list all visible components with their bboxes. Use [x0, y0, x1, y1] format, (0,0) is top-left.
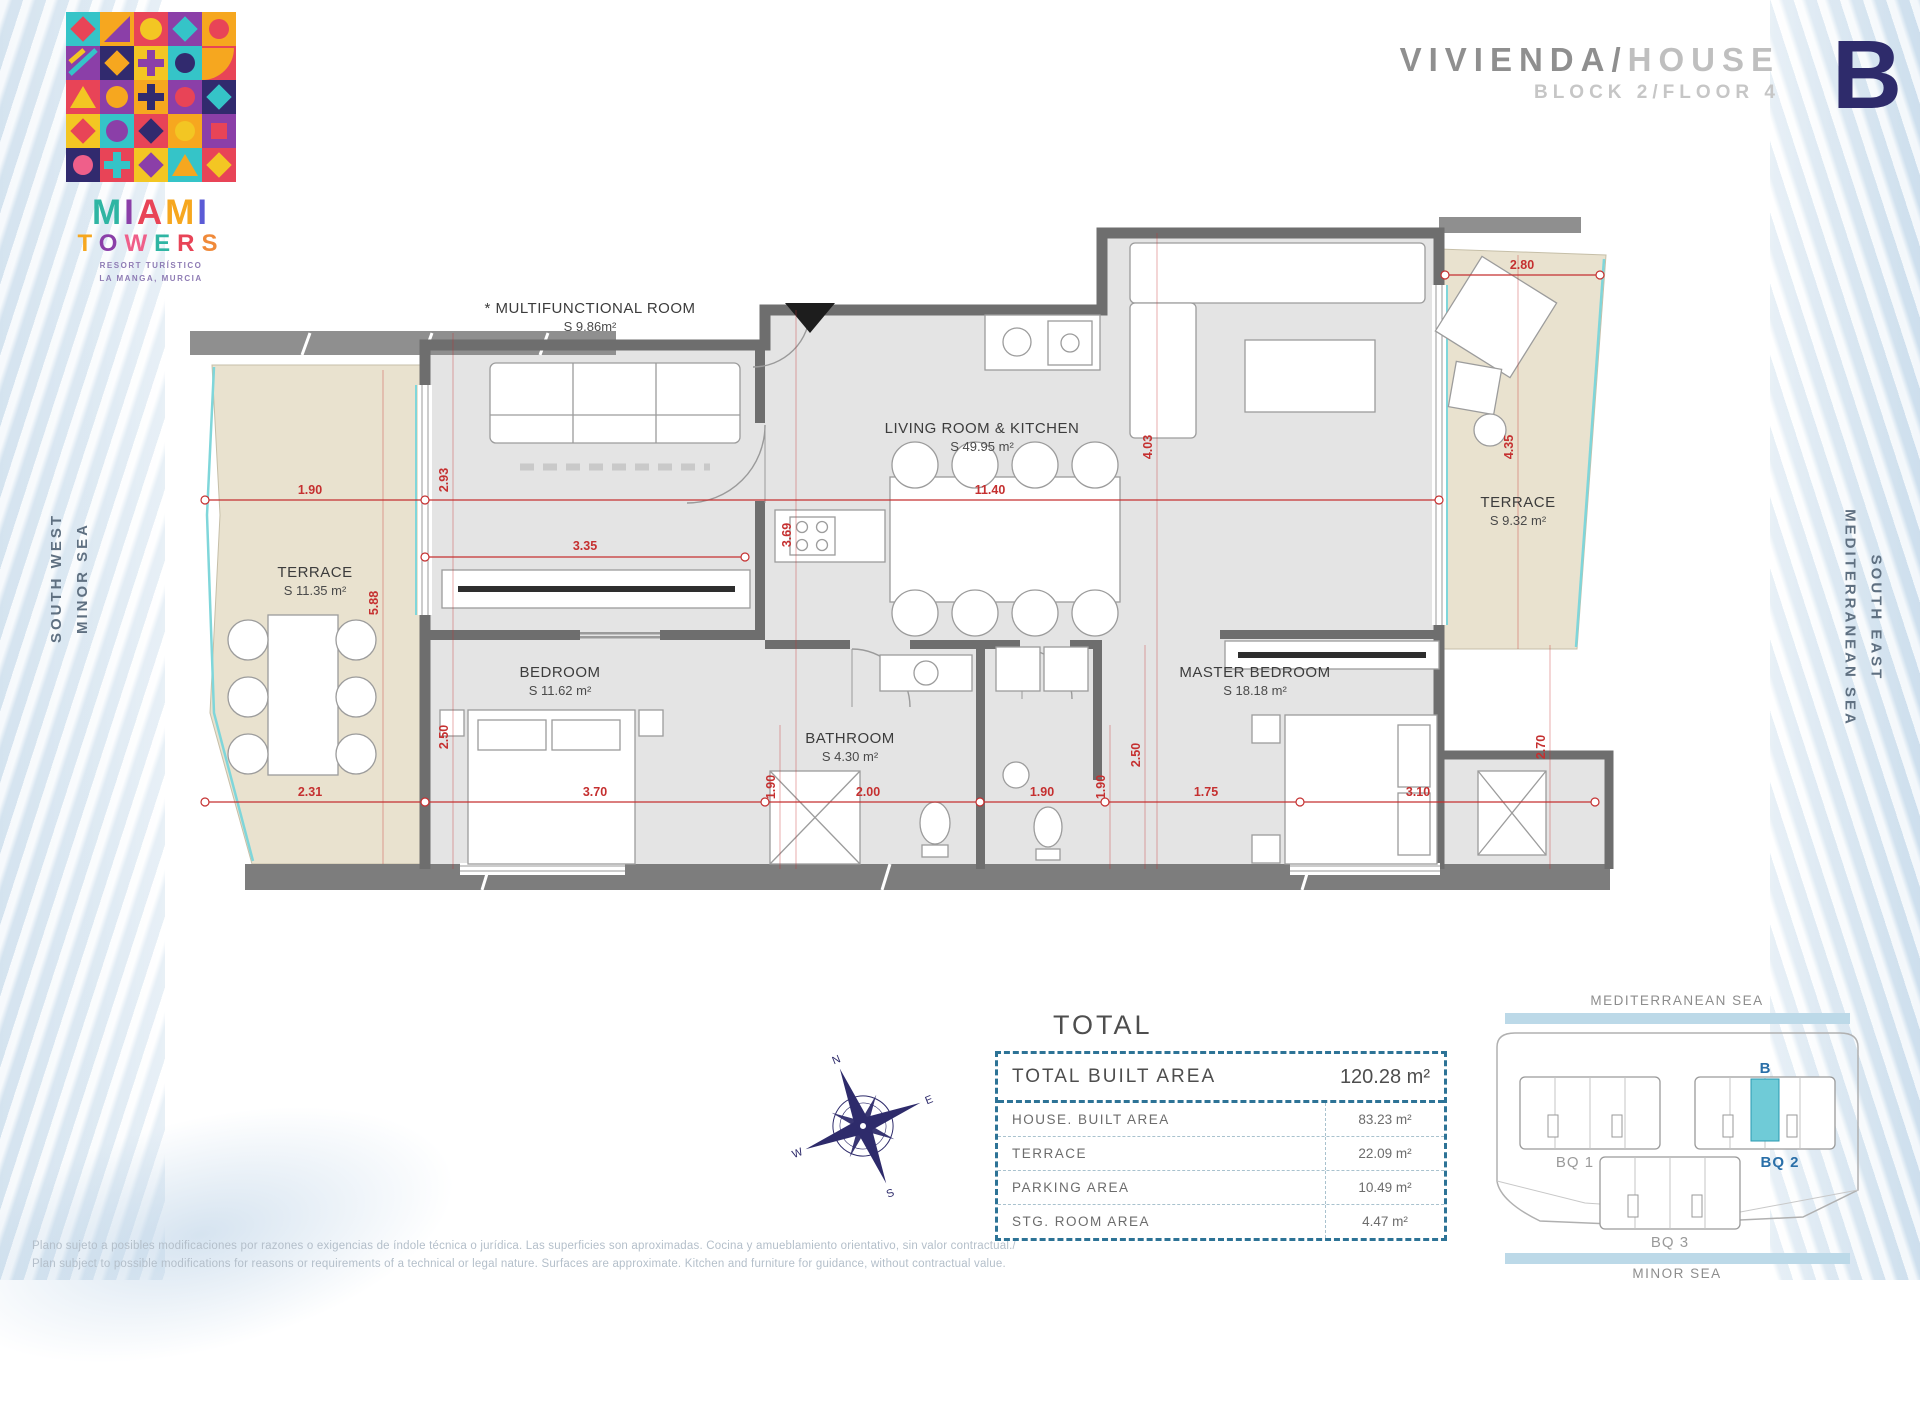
- compass-w: W: [790, 1146, 805, 1161]
- row-value: 10.49 m²: [1325, 1171, 1444, 1204]
- unit-letter: B: [1832, 26, 1902, 123]
- row-value: 83.23 m²: [1325, 1103, 1444, 1136]
- orientation-right-line2: MEDITERRANEAN SEA: [1836, 509, 1862, 727]
- sitemap-top-sea-label: MEDITERRANEAN SEA: [1590, 993, 1763, 1008]
- row-label: TERRACE: [998, 1146, 1325, 1161]
- sitemap-label-bq3: BQ 3: [1651, 1234, 1689, 1251]
- disclaimer-line-es: Plano sujeto a posibles modificaciones p…: [32, 1238, 1462, 1256]
- room-area-bedroom: S 11.62 m²: [529, 683, 592, 698]
- svg-text:11.40: 11.40: [975, 483, 1006, 497]
- table-row: STG. ROOM AREA 4.47 m²: [998, 1205, 1444, 1238]
- brand-letter: S: [201, 230, 224, 257]
- orientation-left-line2: MINOR SEA: [70, 513, 96, 643]
- brand-tagline-2: LA MANGA, MURCIA: [58, 272, 244, 286]
- mosaic-logo-icon: [66, 12, 236, 184]
- sitemap-block-1: [1520, 1077, 1660, 1149]
- brand-logo: MIAMI TOWERS RESORT TURÍSTICO LA MANGA, …: [58, 12, 244, 286]
- row-label: PARKING AREA: [998, 1180, 1325, 1195]
- svg-text:1.90: 1.90: [1030, 785, 1054, 799]
- brand-letter: I: [124, 193, 137, 232]
- sheet-subtitle: BLOCK 2/FLOOR 4: [1400, 82, 1780, 104]
- top-right-overhang-wall: [1439, 217, 1581, 233]
- brand-letter: M: [92, 193, 124, 232]
- room-area-multifunctional: S 9.86m²: [564, 319, 617, 334]
- sitemap-unit-letter: B: [1760, 1060, 1771, 1077]
- row-value: 22.09 m²: [1325, 1137, 1444, 1170]
- row-value: 120.28 m²: [1340, 1066, 1444, 1089]
- table-row: TERRACE 22.09 m²: [998, 1137, 1444, 1171]
- brand-letter: I: [197, 193, 210, 232]
- room-label-living: LIVING ROOM & KITCHEN: [885, 420, 1080, 437]
- terrace-dining-set: [228, 615, 376, 775]
- table-row: HOUSE. BUILT AREA 83.23 m²: [998, 1103, 1444, 1137]
- compass-rose-icon: N E S W: [788, 1038, 938, 1218]
- brand-letter: E: [154, 230, 177, 257]
- svg-text:4.03: 4.03: [1141, 435, 1155, 459]
- totals-block: TOTAL TOTAL BUILT AREA 120.28 m² HOUSE. …: [995, 1010, 1447, 1241]
- svg-text:2.50: 2.50: [437, 725, 451, 749]
- multifunctional-sofa: [490, 363, 740, 443]
- orientation-right-line1: SOUTH EAST: [1862, 509, 1888, 727]
- sitemap-block-3: [1600, 1157, 1740, 1229]
- sitemap-bottom-sea-label: MINOR SEA: [1632, 1266, 1721, 1280]
- svg-text:1.90: 1.90: [1094, 775, 1108, 799]
- room-label-terrace-right: TERRACE: [1480, 494, 1555, 511]
- kitchen-counter: [985, 315, 1100, 370]
- room-label-bedroom: BEDROOM: [519, 664, 600, 681]
- svg-text:3.35: 3.35: [573, 539, 597, 553]
- site-location-map: MEDITERRANEAN SEA B BQ 1 BQ 2 BQ 3 MINOR…: [1485, 985, 1870, 1285]
- room-label-multifunctional: * MULTIFUNCTIONAL ROOM: [484, 300, 695, 317]
- disclaimer: Plano sujeto a posibles modificaciones p…: [32, 1238, 1462, 1274]
- row-label: TOTAL BUILT AREA: [998, 1066, 1340, 1088]
- room-area-living: S 49.95 m²: [950, 439, 1014, 454]
- sheet-header: VIVIENDA/HOUSE BLOCK 2/FLOOR 4: [1400, 42, 1780, 104]
- svg-text:1.75: 1.75: [1194, 785, 1218, 799]
- svg-text:3.70: 3.70: [583, 785, 607, 799]
- title-en: HOUSE: [1628, 41, 1780, 78]
- svg-text:2.00: 2.00: [856, 785, 880, 799]
- brand-letter: T: [78, 230, 99, 257]
- svg-text:2.50: 2.50: [1129, 743, 1143, 767]
- disclaimer-line-en: Plan subject to possible modifications f…: [32, 1256, 1462, 1274]
- room-label-bathroom: BATHROOM: [805, 730, 895, 747]
- sitemap-block-2: [1695, 1077, 1835, 1149]
- brand-letter: W: [124, 230, 154, 257]
- room-area-master: S 18.18 m²: [1223, 683, 1287, 698]
- title-es: VIVIENDA/: [1400, 41, 1628, 78]
- brand-name-towers: TOWERS: [58, 230, 244, 259]
- brand-tagline-1: RESORT TURÍSTICO: [58, 259, 244, 273]
- table-row: TOTAL BUILT AREA 120.28 m²: [998, 1054, 1444, 1103]
- floor-plan: 1.90 2.93 3.35 11.40 3.69 4.03 2.80 4.35…: [190, 215, 1670, 950]
- svg-text:5.88: 5.88: [367, 591, 381, 615]
- room-area-terrace-left: S 11.35 m²: [284, 583, 347, 598]
- svg-text:2.93: 2.93: [437, 468, 451, 492]
- orientation-label-right: SOUTH EAST MEDITERRANEAN SEA: [1836, 509, 1889, 727]
- row-label: HOUSE. BUILT AREA: [998, 1112, 1325, 1127]
- svg-text:2.31: 2.31: [298, 785, 322, 799]
- sea-bar-top: [1505, 1013, 1850, 1024]
- brand-letter: O: [99, 230, 125, 257]
- brand-letter: R: [177, 230, 201, 257]
- bedroom-bed: [440, 710, 663, 864]
- totals-table: TOTAL BUILT AREA 120.28 m² HOUSE. BUILT …: [995, 1051, 1447, 1241]
- sitemap-label-bq2: BQ 2: [1760, 1154, 1799, 1171]
- svg-text:1.90: 1.90: [298, 483, 322, 497]
- highlighted-unit: [1751, 1079, 1779, 1141]
- totals-title: TOTAL: [1053, 1010, 1447, 1041]
- svg-text:3.69: 3.69: [780, 523, 794, 547]
- room-area-bathroom: S 4.30 m²: [822, 749, 879, 764]
- sitemap-label-bq1: BQ 1: [1556, 1154, 1594, 1171]
- brand-letter: M: [165, 193, 197, 232]
- svg-text:4.35: 4.35: [1502, 435, 1516, 459]
- brand-name-miami: MIAMI: [58, 195, 244, 230]
- storage-box: [1478, 771, 1546, 855]
- svg-text:1.90: 1.90: [764, 775, 778, 799]
- row-label: STG. ROOM AREA: [998, 1214, 1325, 1229]
- sheet-title: VIVIENDA/HOUSE: [1400, 42, 1780, 78]
- svg-text:2.80: 2.80: [1510, 258, 1534, 272]
- orientation-left-line1: SOUTH WEST: [44, 513, 70, 643]
- room-label-terrace-left: TERRACE: [277, 564, 352, 581]
- room-label-master: MASTER BEDROOM: [1179, 664, 1330, 681]
- table-row: PARKING AREA 10.49 m²: [998, 1171, 1444, 1205]
- compass-n: N: [830, 1053, 842, 1067]
- orientation-label-left: SOUTH WEST MINOR SEA: [44, 513, 97, 643]
- svg-text:2.70: 2.70: [1534, 735, 1548, 759]
- row-value: 4.47 m²: [1325, 1205, 1444, 1238]
- compass-e: E: [924, 1093, 935, 1107]
- bedroom-closet: [442, 570, 750, 608]
- room-area-terrace-right: S 9.32 m²: [1490, 513, 1547, 528]
- svg-text:3.10: 3.10: [1406, 785, 1430, 799]
- compass-s: S: [885, 1187, 896, 1201]
- brand-letter: A: [137, 193, 165, 232]
- sea-bar-bottom: [1505, 1253, 1850, 1264]
